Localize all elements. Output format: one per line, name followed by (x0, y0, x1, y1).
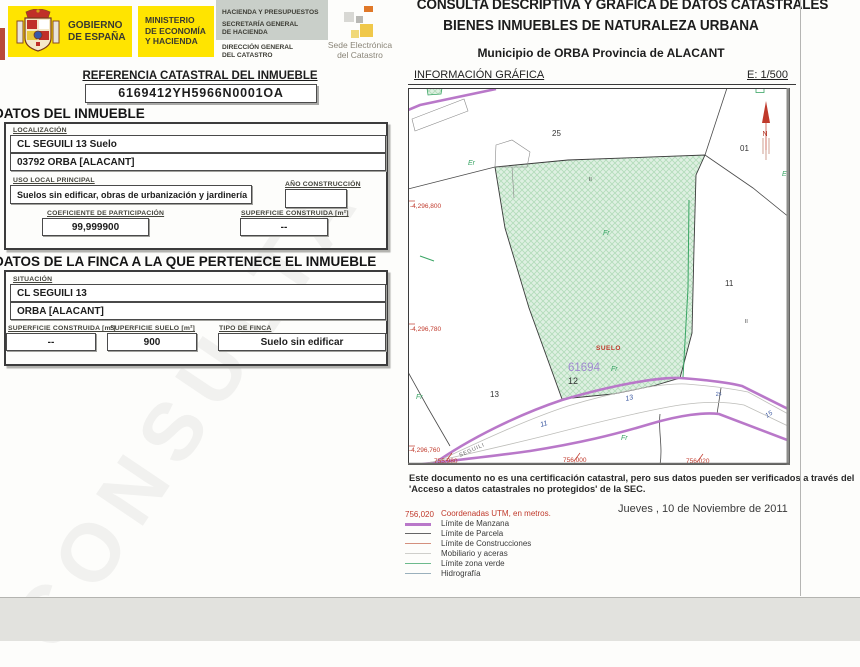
legend-sample-manzana (405, 523, 431, 526)
legend-row-hidrografia: Hidrografía (405, 570, 625, 580)
situacion-label: SITUACIÓN (13, 276, 52, 283)
datos-finca-heading: DATOS DE LA FINCA A LA QUE PERTENECE EL … (0, 254, 376, 269)
map-coord-y1: -4,296,800 (410, 203, 441, 210)
map-label-fr-3: Fr (416, 394, 423, 401)
tipo-de-finca-label: TIPO DE FINCA (219, 325, 271, 332)
superficie-construida-field: -- (240, 218, 328, 236)
secretaria-line1: SECRETARÍA GENERAL (222, 21, 298, 29)
direccion-line1: DIRECCIÓN GENERAL (222, 44, 293, 52)
map-label-parcel-25: 25 (552, 129, 561, 138)
map-legend: 756,020 Coordenadas UTM, en metros. Lími… (405, 510, 625, 590)
situacion-line1-field: CL SEGUILI 13 (10, 284, 386, 302)
map-label-fr-4: Fr (621, 435, 628, 442)
referencia-catastral-value: 6169412YH5966N0001OA (85, 84, 317, 103)
zona-verde-patch (427, 88, 442, 95)
localizacion-label: LOCALIZACIÓN (13, 127, 67, 134)
legend-row-zona-verde: Límite zona verde (405, 560, 625, 570)
situacion-line2-field: ORBA [ALACANT] (10, 302, 386, 320)
sede-label-line1: Sede Electrónica (316, 40, 404, 50)
legend-sample-hidrografia (405, 573, 431, 574)
legend-coord-sample: 756,020 (405, 510, 434, 519)
map-floors-mark-2: II (745, 319, 748, 325)
anio-construccion-field (285, 189, 347, 208)
map-house-number-2s: 2s (714, 391, 722, 398)
scan-edge-artifact (0, 28, 5, 60)
informacion-grafica-label: INFORMACIÓN GRÁFICA (414, 69, 544, 81)
map-label-fr-1: Fr (603, 230, 610, 237)
secretaria-block: HACIENDA Y PRESUPUESTOS SECRETARÍA GENER… (216, 0, 328, 40)
legend-sample-zona-verde (405, 563, 431, 564)
sede-electronica-icon (338, 6, 378, 40)
finca-superficie-construida-field: -- (6, 333, 96, 351)
scanned-cadastral-document: { "header": { "gobierno1": "GOBIERNO", "… (0, 0, 860, 640)
hacienda-presupuestos-label: HACIENDA Y PRESUPUESTOS (222, 9, 319, 17)
legend-label-mobiliario: Mobiliario y aceras (441, 549, 508, 558)
document-title-line3: Municipio de ORBA Provincia de ALACANT (405, 46, 797, 60)
map-scale-label: E: 1/500 (747, 69, 788, 81)
coeficiente-field: 99,999900 (42, 218, 149, 236)
map-label-parcel-11: 11 (725, 279, 734, 288)
legend-row-manzana: Límite de Manzana (405, 520, 625, 530)
ministerio-line1: MINISTERIO (145, 15, 195, 26)
page-right-edge (800, 0, 801, 596)
ministerio-line3: Y HACIENDA (145, 36, 198, 47)
datos-inmueble-heading: DATOS DEL INMUEBLE (0, 106, 145, 121)
map-label-fr-2: Fr (611, 366, 618, 373)
tipo-de-finca-field: Suelo sin edificar (218, 333, 386, 351)
north-letter: N (763, 131, 768, 138)
map-floors-mark-1: II (589, 177, 592, 183)
map-label-parcel-12: 12 (568, 376, 578, 386)
sede-label-line2: del Catastro (316, 50, 404, 60)
localizacion-line1-field: CL SEGUILI 13 Suelo (10, 135, 386, 153)
superficie-construida-label: SUPERFICIE CONSTRUIDA [m²] (241, 210, 349, 217)
superficie-suelo-label: SUPERFICIE SUELO [m²] (110, 325, 195, 332)
localizacion-line2-field: 03792 ORBA [ALACANT] (10, 153, 386, 171)
uso-local-principal-label: USO LOCAL PRINCIPAL (13, 177, 95, 184)
legend-label-hidrografia: Hidrografía (441, 569, 481, 578)
finca-superficie-construida-label: SUPERFICIE CONSTRUIDA [m²] (8, 325, 116, 332)
legend-sample-construcciones (405, 543, 431, 544)
legend-row-mobiliario: Mobiliario y aceras (405, 550, 625, 560)
legend-row-construcciones: Límite de Construcciones (405, 540, 625, 550)
anio-construccion-label: AÑO CONSTRUCCIÓN (285, 181, 361, 188)
referencia-catastral-label: REFERENCIA CATASTRAL DEL INMUEBLE (60, 70, 340, 82)
uso-local-principal-field: Suelos sin edificar, obras de urbanizaci… (10, 185, 252, 204)
map-coord-y3: -4,296,760 (409, 447, 440, 454)
secretaria-line2: DE HACIENDA (222, 29, 268, 37)
legend-label-zona-verde: Límite zona verde (441, 559, 505, 568)
legend-label-manzana: Límite de Manzana (441, 519, 509, 528)
map-suelo-label: SUELO (596, 345, 621, 352)
map-label-parcel-01: 01 (740, 144, 749, 153)
map-label-er: Er (468, 160, 476, 167)
informacion-grafica-row: INFORMACIÓN GRÁFICA E: 1/500 (408, 66, 796, 85)
document-date: Jueves , 10 de Noviembre de 2011 (618, 503, 788, 515)
scan-bottom-strip (0, 597, 860, 641)
document-title-line1: CONSULTA DESCRIPTIVA Y GRÁFICA DE DATOS … (417, 0, 785, 13)
document-title-line2: BIENES INMUEBLES DE NATURALEZA URBANA (417, 18, 785, 34)
ministerio-block: MINISTERIO DE ECONOMÍA Y HACIENDA (138, 6, 214, 57)
map-coord-y2: -4,296,780 (410, 326, 441, 333)
legend-sample-parcela (405, 533, 431, 534)
sede-electronica-logo: Sede Electrónica del Catastro (330, 4, 390, 60)
legend-row-coordenadas: 756,020 Coordenadas UTM, en metros. (405, 510, 625, 520)
gobierno-de-espana-block: GOBIERNO DE ESPAÑA (8, 6, 132, 57)
ministerio-line2: DE ECONOMÍA (145, 26, 206, 37)
coeficiente-label: COEFICIENTE DE PARTICIPACIÓN (47, 210, 164, 217)
legend-label-coordenadas: Coordenadas UTM, en metros. (441, 509, 551, 518)
gobierno-label-line1: GOBIERNO (68, 20, 122, 32)
map-manzana-number: 61694 (568, 362, 601, 374)
map-label-e: E (782, 171, 787, 178)
cadastral-map: N 25 01 11 12 13 II II Er Fr Fr Fr Fr E … (408, 88, 790, 465)
spain-coat-of-arms-icon (12, 9, 64, 54)
gobierno-label-line2: DE ESPAÑA (68, 32, 126, 44)
legend-label-parcela: Límite de Parcela (441, 529, 503, 538)
superficie-suelo-field: 900 (107, 333, 197, 351)
disclaimer-line1: Este documento no es una certificación c… (409, 473, 854, 485)
map-label-parcel-13: 13 (490, 390, 499, 399)
legend-label-construcciones: Límite de Construcciones (441, 539, 531, 548)
legend-sample-mobiliario (405, 553, 431, 554)
direccion-line2: DEL CATASTRO (222, 52, 273, 60)
disclaimer-line2: 'Acceso a datos catastrales no protegido… (409, 484, 645, 496)
